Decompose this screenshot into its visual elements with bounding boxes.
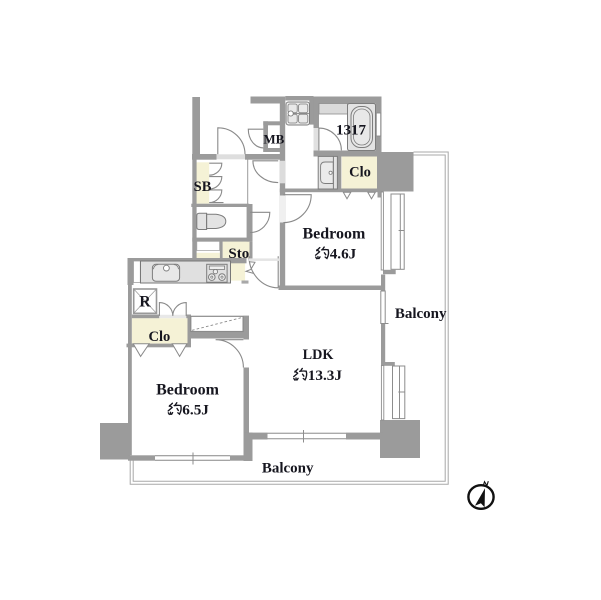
svg-text:Clo: Clo bbox=[149, 329, 171, 345]
svg-text:R: R bbox=[139, 293, 151, 310]
svg-text:Sto: Sto bbox=[228, 246, 249, 262]
svg-text:MB: MB bbox=[263, 132, 284, 147]
svg-text:1317: 1317 bbox=[336, 122, 367, 138]
svg-text:Bedroom: Bedroom bbox=[156, 381, 219, 398]
svg-text:Bedroom: Bedroom bbox=[302, 226, 365, 243]
svg-text:Balcony: Balcony bbox=[395, 306, 447, 322]
svg-text:4.6J: 4.6J bbox=[330, 246, 357, 263]
svg-text:Clo: Clo bbox=[349, 164, 371, 180]
svg-text:SB: SB bbox=[194, 179, 212, 195]
svg-text:6.5J: 6.5J bbox=[182, 401, 209, 418]
svg-text:LDK: LDK bbox=[303, 347, 334, 363]
svg-text:Balcony: Balcony bbox=[262, 460, 314, 476]
svg-text:13.3J: 13.3J bbox=[308, 367, 343, 384]
